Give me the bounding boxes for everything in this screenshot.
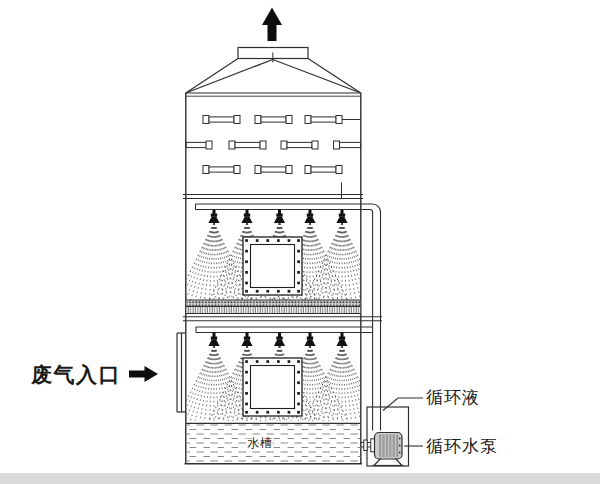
lower-spray-nozzles	[208, 333, 347, 347]
gas-inlet-label: 废气入口	[30, 363, 121, 386]
water-tank-label: 水槽	[247, 436, 273, 450]
circulating-liquid-leader	[383, 398, 423, 411]
diagram-canvas: 水槽 废气入口 循环液 循环水泵	[0, 0, 600, 484]
bottom-strip	[0, 473, 600, 484]
gas-inlet-arrow-icon	[129, 366, 158, 382]
spray-tower-diagram: 水槽 废气入口 循环液 循环水泵	[0, 0, 600, 484]
lower-spray-header	[196, 327, 373, 333]
upper-spray-nozzles	[208, 210, 347, 224]
packing-bed	[186, 300, 361, 314]
gas-inlet-flange	[177, 333, 186, 412]
circulating-liquid-label: 循环液	[426, 388, 480, 407]
hood	[186, 53, 361, 97]
upper-manhole	[243, 237, 302, 295]
circulating-pump-label: 循环水泵	[426, 437, 498, 456]
demister-slats	[186, 116, 360, 199]
water-tank	[185, 423, 363, 463]
lower-manhole	[243, 358, 302, 416]
section-divider-lower	[183, 317, 382, 321]
section-divider-upper	[183, 195, 363, 199]
exhaust-arrow-icon	[262, 8, 282, 42]
